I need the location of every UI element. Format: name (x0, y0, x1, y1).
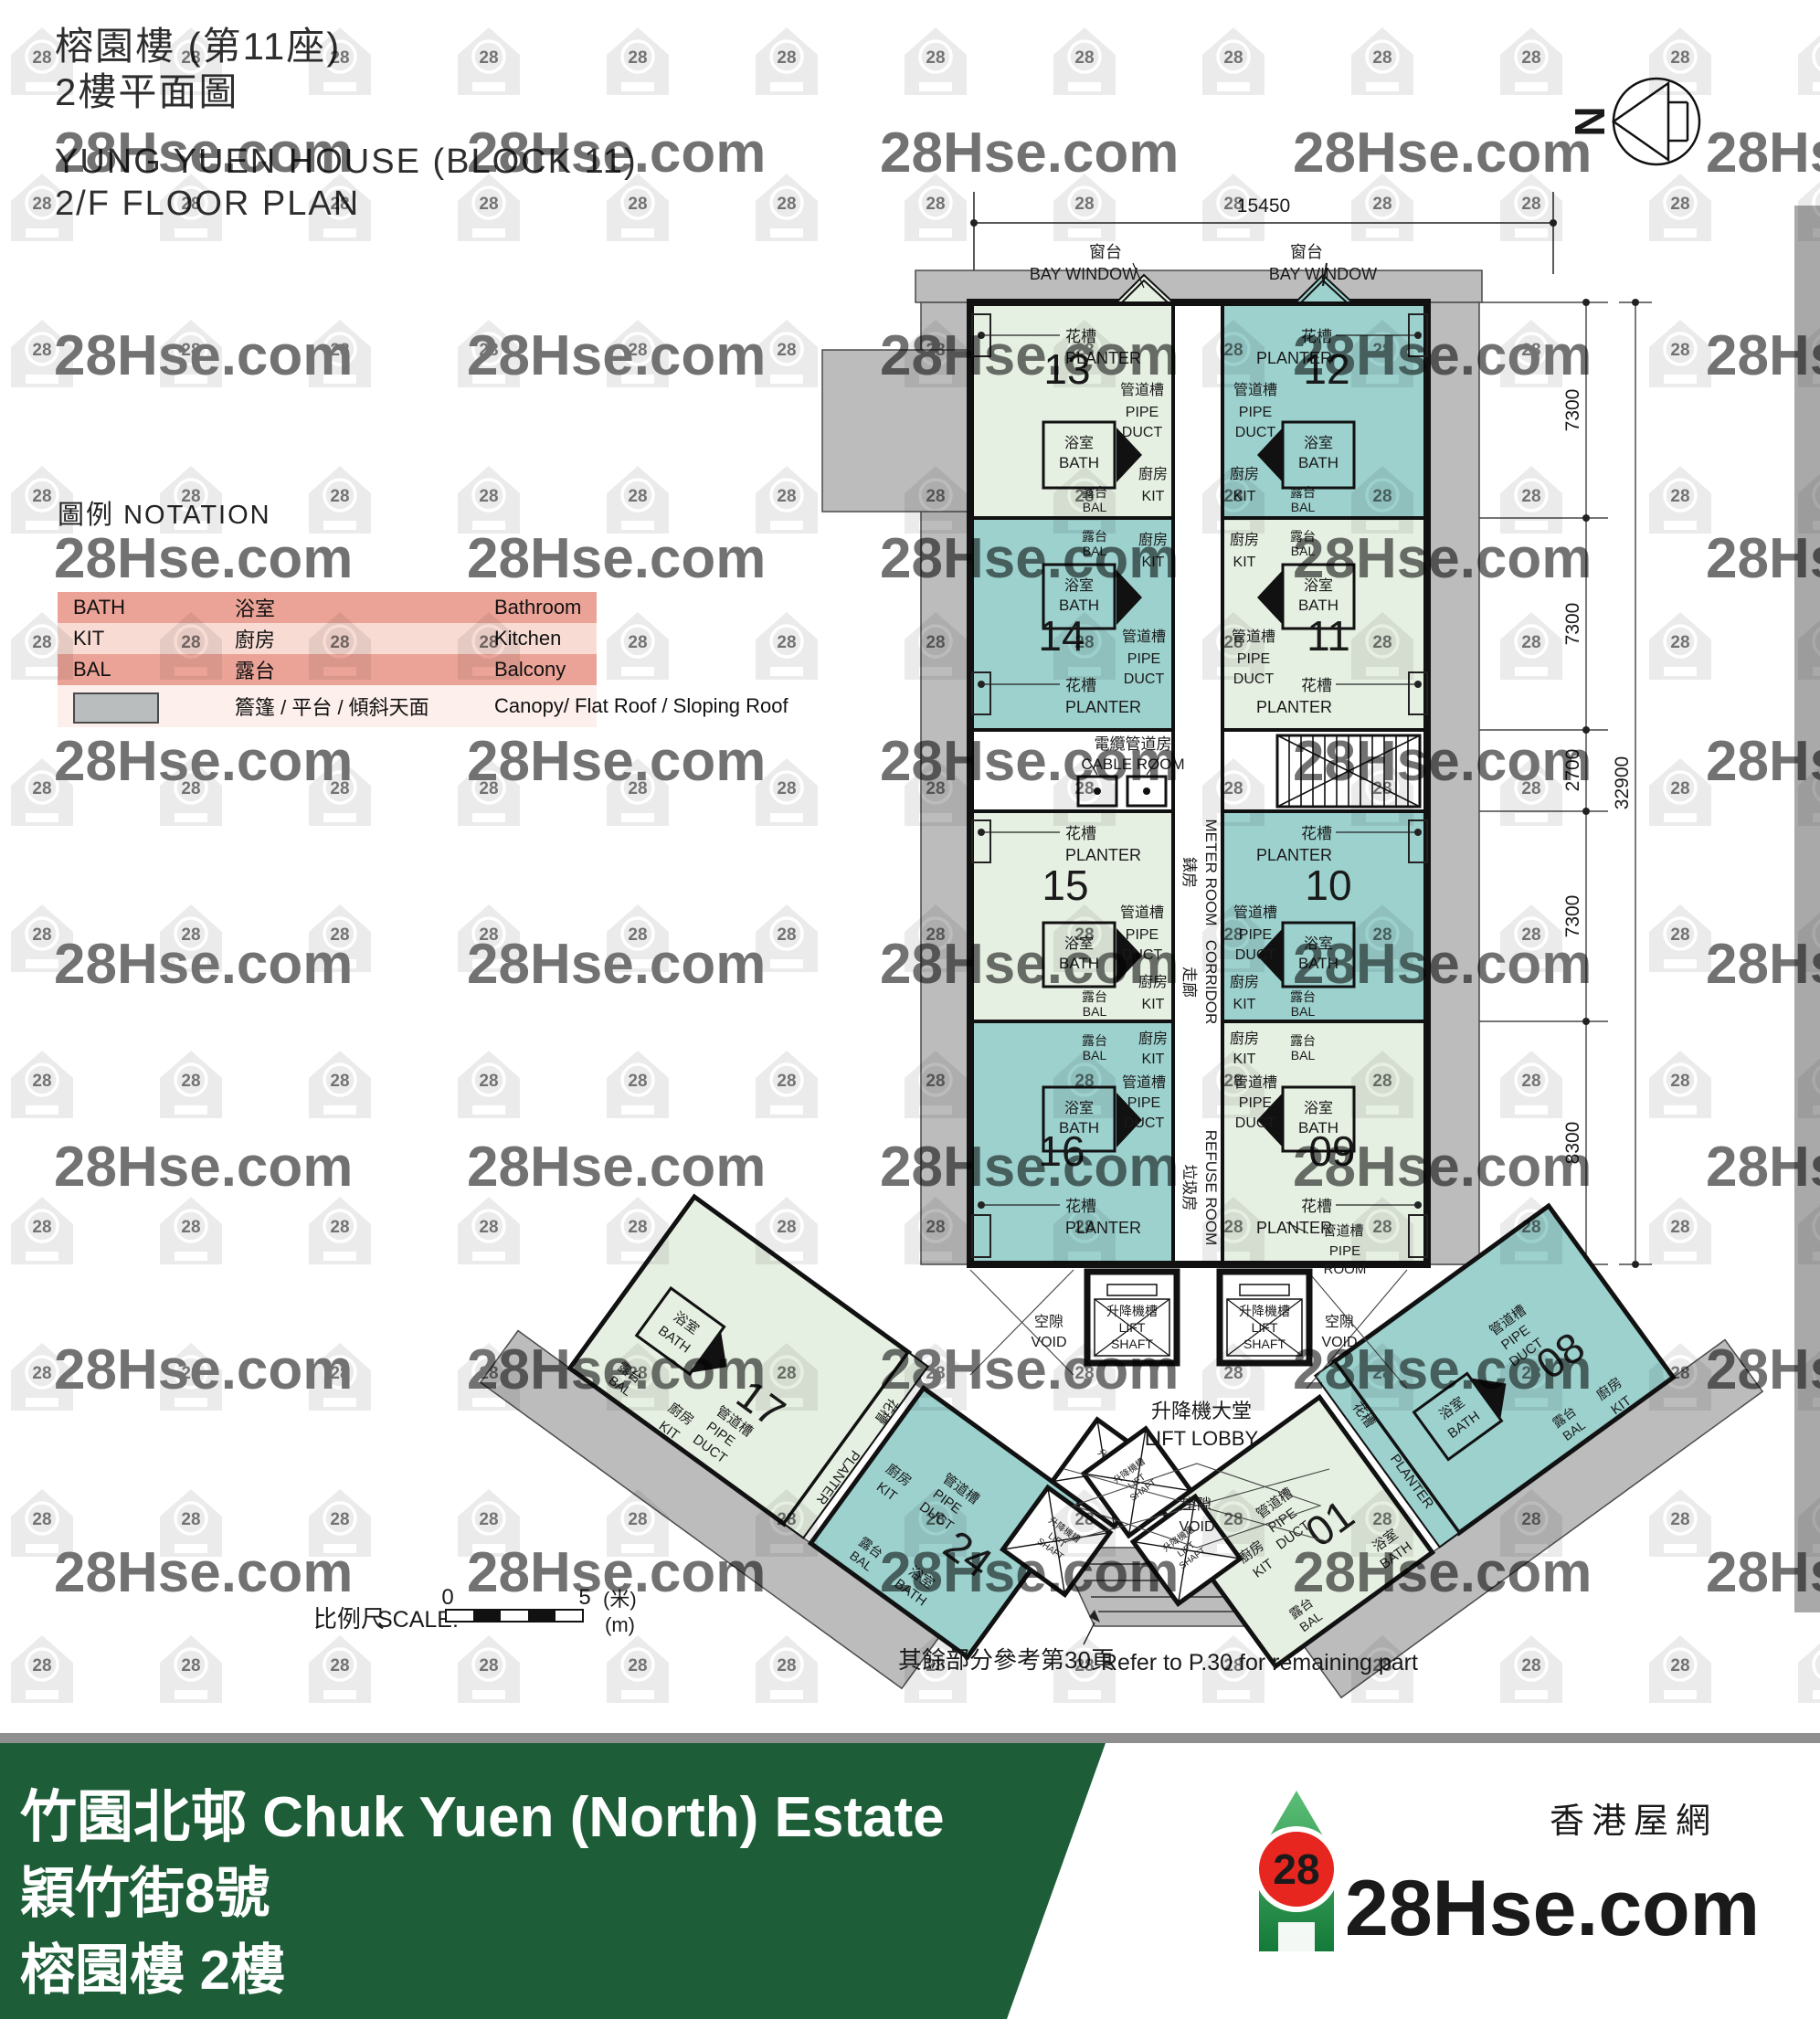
planter-label-cn: 花槽 (1065, 677, 1096, 694)
pipe-duct-label-cn: 管道槽 (1122, 629, 1166, 645)
bal-label-cn: 露台 (1082, 1033, 1107, 1048)
scale-unit-en: (m) (605, 1613, 635, 1636)
bath-label-cn: 浴室 (1064, 577, 1094, 594)
planter-label-en: PLANTER (1256, 349, 1332, 367)
planter-label-en: PLANTER (1065, 698, 1141, 716)
north-arrow: N (1566, 79, 1699, 164)
pipe-duct-label-cn: 管道槽 (1233, 904, 1277, 921)
pipe-duct-label-cn: 管道槽 (1232, 629, 1275, 645)
planter-label-en: PLANTER (1065, 349, 1141, 367)
cable-room-label-en: CABLE ROOM (1081, 756, 1184, 773)
pipe-room-label-en: ROOM (1324, 1262, 1367, 1277)
bal-label-en: BAL (1291, 544, 1316, 558)
pipe-duct-label-en: DUCT (1235, 425, 1276, 440)
meter-room-label-cn: 錶房 (1180, 857, 1198, 888)
edge-gray-strip (1794, 206, 1820, 1612)
planter-label-cn: 花槽 (1301, 328, 1332, 345)
planter-label-en: PLANTER (1256, 1219, 1332, 1237)
planter-label-cn: 花槽 (1301, 1198, 1332, 1215)
bal-label-en: BAL (1083, 500, 1107, 514)
planter-label-en: PLANTER (1065, 846, 1141, 864)
dim-seg-4: 8300 (1562, 1122, 1583, 1165)
floor-plan-svg: N 15450 7300 7300 2700 (0, 0, 1820, 1733)
lift-shaft-label-en: LIFT (1119, 1320, 1146, 1335)
footer-banner: 竹園北邨 Chuk Yuen (North) Estate 穎竹街8號 榕園樓 … (0, 1743, 1820, 2019)
void-label-cn: 空隙 (1034, 1314, 1063, 1330)
unit-15-number: 15 (1042, 862, 1088, 909)
lift-shaft-label-en: SHAFT (1111, 1337, 1153, 1351)
planter-label-cn: 花槽 (1301, 825, 1332, 842)
bath-label-en: BATH (1298, 955, 1339, 972)
pipe-duct-label-en: PIPE (1239, 405, 1272, 420)
pipe-duct-label-en: DUCT (1122, 425, 1163, 440)
kit-label-cn: 廚房 (1230, 465, 1259, 482)
bal-label-cn: 露台 (1082, 989, 1107, 1004)
scale-bar: 比例尺 SCALE: 0 5 (米) (m) (313, 1585, 637, 1636)
pipe-duct-label-en: DUCT (1124, 1115, 1165, 1131)
corridor-label-en: CORRIDOR (1202, 940, 1220, 1025)
note-en: Refer to P.30 for remaining part (1101, 1650, 1418, 1675)
scale-label-cn: 比例尺 (313, 1605, 385, 1633)
pipe-duct-label-cn: 管道槽 (1122, 1074, 1166, 1091)
dim-seg-3: 7300 (1562, 895, 1583, 938)
kit-label-en: KIT (1142, 1052, 1165, 1067)
pipe-room-label-en: PIPE (1329, 1243, 1360, 1259)
bath-label-en: BATH (1059, 955, 1099, 972)
void-label-en: VOID (1321, 1335, 1357, 1350)
bath-label-cn: 浴室 (1064, 936, 1094, 952)
dim-top: 15450 (1237, 196, 1290, 217)
scale-start: 0 (441, 1585, 453, 1610)
logo-badge: 28 (1273, 1845, 1319, 1893)
kit-label-en: KIT (1142, 997, 1165, 1012)
lift-shaft-right: 升降機槽 LIFT SHAFT (1220, 1272, 1309, 1363)
pipe-duct-label-cn: 管道槽 (1120, 382, 1164, 398)
bath-label-en: BATH (1059, 454, 1099, 471)
unit-11-number: 11 (1307, 612, 1350, 660)
void-label-cn: 空隙 (1325, 1314, 1354, 1330)
scale-end: 5 (578, 1585, 590, 1610)
kit-label-cn: 廚房 (1138, 531, 1168, 548)
pipe-room-label-cn: 管道槽 (1322, 1223, 1363, 1239)
logo-site-name-cn: 香港屋網 (1550, 1802, 1718, 1841)
bal-label-en: BAL (1291, 500, 1316, 514)
unit-14-number: 14 (1038, 612, 1085, 660)
kit-label-cn: 廚房 (1230, 531, 1259, 548)
bath-label-en: BATH (1298, 454, 1339, 471)
corridor-label-cn: 走廊 (1180, 967, 1198, 998)
pipe-duct-label-cn: 管道槽 (1233, 382, 1277, 398)
kit-label-cn: 廚房 (1230, 1030, 1259, 1047)
meter-room-label-en: METER ROOM (1202, 819, 1220, 925)
void-label-cn: 空隙 (1182, 1496, 1212, 1513)
unit-10-number: 10 (1305, 862, 1351, 909)
pipe-duct-label-en: PIPE (1239, 927, 1272, 943)
pipe-duct-label-en: DUCT (1233, 671, 1275, 687)
bath-label-en: BATH (1298, 1119, 1339, 1136)
bal-label-cn: 露台 (1290, 989, 1316, 1004)
dim-seg-1: 7300 (1562, 603, 1583, 646)
kit-label-en: KIT (1142, 489, 1165, 504)
pipe-duct-label-en: PIPE (1126, 927, 1159, 943)
scale-unit-cn: (米) (603, 1588, 637, 1611)
footer-building-floor: 榕園樓 2樓 (20, 1926, 285, 2005)
lift-shaft-label-en: SHAFT (1243, 1337, 1286, 1351)
bay-window-label-en: BAY WINDOW (1269, 265, 1377, 283)
bath-label-cn: 浴室 (1064, 435, 1094, 451)
dim-total: 32900 (1612, 756, 1633, 809)
kit-label-en: KIT (1233, 997, 1256, 1012)
kit-label-cn: 廚房 (1138, 1030, 1168, 1047)
lift-shaft-label-en: LIFT (1252, 1320, 1278, 1335)
logo-site-name: 28Hse.com (1345, 1865, 1760, 1952)
pipe-duct-label-cn: 管道槽 (1120, 904, 1164, 921)
bal-label-en: BAL (1083, 1004, 1107, 1019)
pipe-duct-label-en: DUCT (1122, 947, 1163, 963)
note-cn: 其餘部分參考第30頁 (898, 1646, 1115, 1674)
pipe-duct-label-en: DUCT (1235, 947, 1276, 963)
bal-label-en: BAL (1291, 1048, 1316, 1062)
dim-seg-0: 7300 (1562, 389, 1583, 432)
planter-label-cn: 花槽 (1301, 677, 1332, 694)
bay-window-label-cn: 窗台 (1089, 243, 1122, 261)
kit-label-cn: 廚房 (1138, 465, 1168, 482)
dim-seg-2: 2700 (1562, 749, 1583, 792)
bath-label-en: BATH (1298, 597, 1339, 614)
pipe-duct-label-cn: 管道槽 (1233, 1074, 1277, 1091)
lift-shaft-label-cn: 升降機槽 (1106, 1304, 1158, 1318)
void-label-en: VOID (1179, 1519, 1214, 1535)
lift-lobby-label-en: LIFT LOBBY (1145, 1427, 1259, 1450)
bal-label-cn: 露台 (1082, 529, 1107, 544)
planter-label-cn: 花槽 (1065, 825, 1096, 842)
planter-label-en: PLANTER (1256, 846, 1332, 864)
planter-label-cn: 花槽 (1065, 328, 1096, 345)
pipe-duct-label-en: PIPE (1126, 405, 1159, 420)
banner-divider (0, 1733, 1820, 1743)
tower (970, 302, 1427, 1264)
lift-lobby-label-cn: 升降機大堂 (1151, 1400, 1252, 1422)
bal-label-cn: 露台 (1290, 1033, 1316, 1048)
bath-label-cn: 浴室 (1304, 1100, 1333, 1116)
north-letter: N (1566, 106, 1614, 136)
bath-label-cn: 浴室 (1304, 936, 1333, 952)
bath-label-en: BATH (1059, 597, 1099, 614)
bal-label-cn: 露台 (1082, 485, 1107, 500)
bal-label-cn: 露台 (1290, 529, 1316, 544)
void-label-en: VOID (1031, 1335, 1066, 1350)
kit-label-en: KIT (1142, 555, 1165, 570)
bath-label-cn: 浴室 (1304, 577, 1333, 594)
site-logo[interactable]: 28 28Hse.com 香港屋網 (1243, 1780, 1772, 1999)
refuse-room-label-cn: 垃圾房 (1180, 1165, 1198, 1211)
bay-window-label-cn: 窗台 (1290, 243, 1323, 261)
kit-label-cn: 廚房 (1138, 973, 1168, 990)
floor-plan-page: 榕園樓 (第11座) 2樓平面圖 YUNG YUEN HOUSE (BLOCK … (0, 0, 1820, 2019)
pipe-duct-label-en: PIPE (1127, 651, 1160, 667)
kit-label-en: KIT (1233, 555, 1256, 570)
bal-label-en: BAL (1291, 1004, 1316, 1019)
kit-label-en: KIT (1233, 489, 1256, 504)
refuse-room-label-en: REFUSE ROOM (1202, 1130, 1220, 1246)
kit-label-en: KIT (1233, 1052, 1256, 1067)
logo-house-icon: 28 (1256, 1791, 1337, 1951)
footer-estate: 竹園北邨 Chuk Yuen (North) Estate (20, 1771, 945, 1853)
lift-shaft-left: 升降機槽 LIFT SHAFT (1087, 1272, 1177, 1363)
kit-label-cn: 廚房 (1230, 973, 1259, 990)
lift-shaft-label-cn: 升降機槽 (1239, 1304, 1290, 1318)
bath-label-en: BATH (1059, 1119, 1099, 1136)
bath-label-cn: 浴室 (1064, 1100, 1094, 1116)
pipe-duct-label-en: PIPE (1237, 651, 1270, 667)
pipe-duct-label-en: DUCT (1124, 671, 1165, 687)
bal-label-en: BAL (1083, 1048, 1107, 1062)
pipe-duct-label-en: PIPE (1127, 1095, 1160, 1111)
footer-address: 穎竹街8號 (20, 1849, 270, 1929)
planter-label-en: PLANTER (1065, 1219, 1141, 1237)
bay-window-label-en: BAY WINDOW (1030, 265, 1137, 283)
planter-label-cn: 花槽 (1065, 1198, 1096, 1215)
pipe-duct-label-en: PIPE (1239, 1095, 1272, 1111)
bal-label-en: BAL (1083, 544, 1107, 558)
planter-label-en: PLANTER (1256, 698, 1332, 716)
pipe-duct-label-en: DUCT (1235, 1115, 1276, 1131)
bal-label-cn: 露台 (1290, 485, 1316, 500)
cable-room-label-cn: 電纜管道房 (1095, 735, 1172, 753)
bath-label-cn: 浴室 (1304, 435, 1333, 451)
